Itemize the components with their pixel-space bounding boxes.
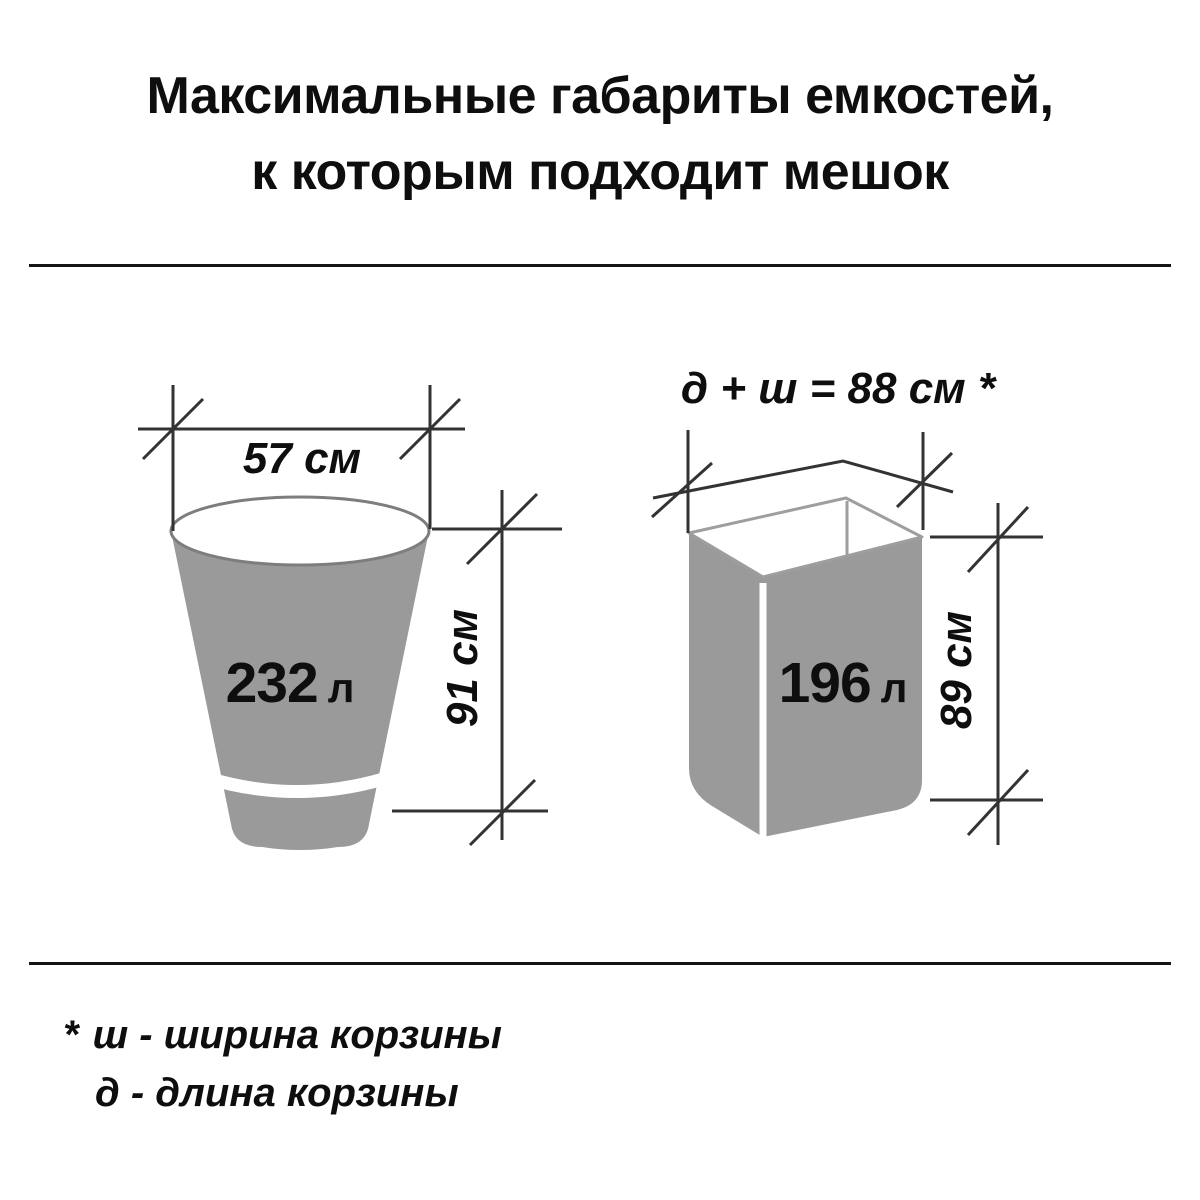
diagrams-canvas (0, 300, 1200, 960)
bucket-height-label: 91 см (438, 588, 488, 748)
infographic-page: Максимальные габариты емкостей, к которы… (0, 0, 1200, 1200)
dimension-line (653, 461, 953, 498)
bottom-divider-line (29, 962, 1171, 965)
footnote-asterisk: * (63, 1013, 79, 1057)
footnote-line-2: д - длина корзины (63, 1064, 502, 1122)
footnote-line-1: *ш - ширина корзины (63, 1006, 502, 1064)
bucket-volume-unit: л (328, 664, 355, 711)
bucket-rim-ellipse (171, 497, 429, 565)
basket-volume-label: 196л (723, 650, 963, 716)
tick-mark (652, 463, 712, 517)
bucket-width-label: 57 см (177, 434, 427, 484)
footnote-width-definition: ш - ширина корзины (93, 1013, 502, 1057)
title-line-1: Максимальные габариты емкостей, (0, 58, 1200, 134)
bucket-volume-label: 232л (170, 650, 410, 716)
top-divider-line (29, 264, 1171, 267)
basket-volume-value: 196 (779, 651, 871, 715)
basket-volume-unit: л (881, 664, 908, 711)
footnote-length-definition: д - длина корзины (95, 1071, 459, 1115)
basket-diagram (652, 430, 1043, 845)
footnote-legend: *ш - ширина корзины д - длина корзины (63, 1006, 502, 1122)
title-line-2: к которым подходит мешок (0, 134, 1200, 210)
basket-formula-label: д + ш = 88 см * (663, 364, 1013, 414)
bucket-volume-value: 232 (226, 651, 318, 715)
page-title: Максимальные габариты емкостей, к которы… (0, 58, 1200, 210)
